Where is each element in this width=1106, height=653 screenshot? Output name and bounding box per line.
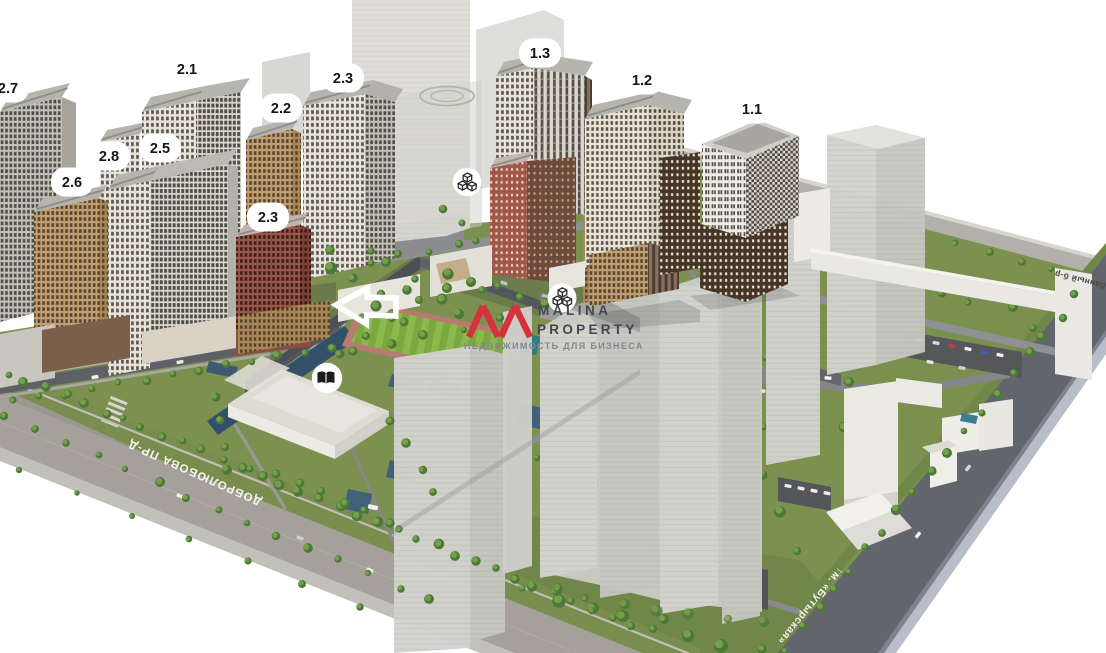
svg-text:2.8: 2.8 bbox=[99, 149, 119, 165]
svg-text:2.3: 2.3 bbox=[333, 71, 353, 87]
svg-text:1.2: 1.2 bbox=[632, 73, 652, 89]
svg-text:2.5: 2.5 bbox=[150, 141, 170, 157]
svg-text:2.1: 2.1 bbox=[177, 62, 197, 78]
svg-text:2.2: 2.2 bbox=[271, 101, 291, 117]
svg-text:1.1: 1.1 bbox=[742, 102, 762, 118]
svg-text:MALINA: MALINA bbox=[538, 303, 612, 318]
svg-text:НЕДВИЖИМОСТЬ ДЛЯ БИЗНЕСА: НЕДВИЖИМОСТЬ ДЛЯ БИЗНЕСА bbox=[464, 341, 644, 351]
svg-text:2.3: 2.3 bbox=[258, 210, 278, 226]
svg-text:2.7: 2.7 bbox=[0, 81, 18, 97]
svg-text:2.6: 2.6 bbox=[62, 175, 82, 191]
svg-text:PROPERTY: PROPERTY bbox=[537, 322, 638, 337]
svg-text:1.3: 1.3 bbox=[530, 46, 550, 62]
